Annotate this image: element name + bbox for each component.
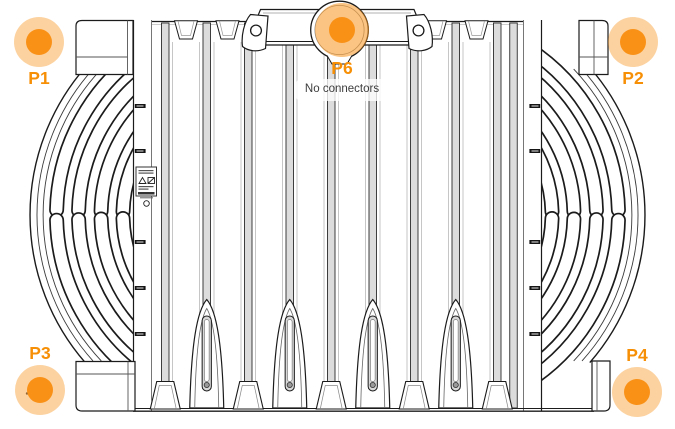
port-marker-p2[interactable]: P2 bbox=[608, 17, 658, 67]
port-marker-label-p6: P6 bbox=[331, 60, 352, 78]
port-marker-core bbox=[26, 29, 52, 55]
label-screw-hole bbox=[144, 201, 150, 207]
port-marker-core bbox=[624, 379, 650, 405]
port-marker-label-p3: P3 bbox=[29, 345, 50, 363]
bracket-hole-left bbox=[251, 25, 262, 36]
port-marker-p4[interactable]: P4 bbox=[612, 367, 662, 417]
port-marker-p1[interactable]: P1 bbox=[14, 17, 64, 67]
port-marker-label-p1: P1 bbox=[28, 70, 49, 88]
port-marker-p6[interactable]: P6 No connectors bbox=[315, 3, 369, 57]
port-marker-label-p2: P2 bbox=[622, 70, 643, 88]
connector-location-view: P1 P2 P3 P4 P6 No connectors bbox=[0, 0, 675, 429]
port-marker-core bbox=[620, 29, 646, 55]
port-marker-p3[interactable]: P3 bbox=[15, 365, 65, 415]
port-marker-label-p4: P4 bbox=[626, 347, 647, 365]
port-tooltip: No connectors bbox=[296, 79, 388, 101]
port-marker-core bbox=[329, 17, 355, 43]
bracket-hole-right bbox=[413, 25, 424, 36]
port-marker-core bbox=[27, 377, 53, 403]
